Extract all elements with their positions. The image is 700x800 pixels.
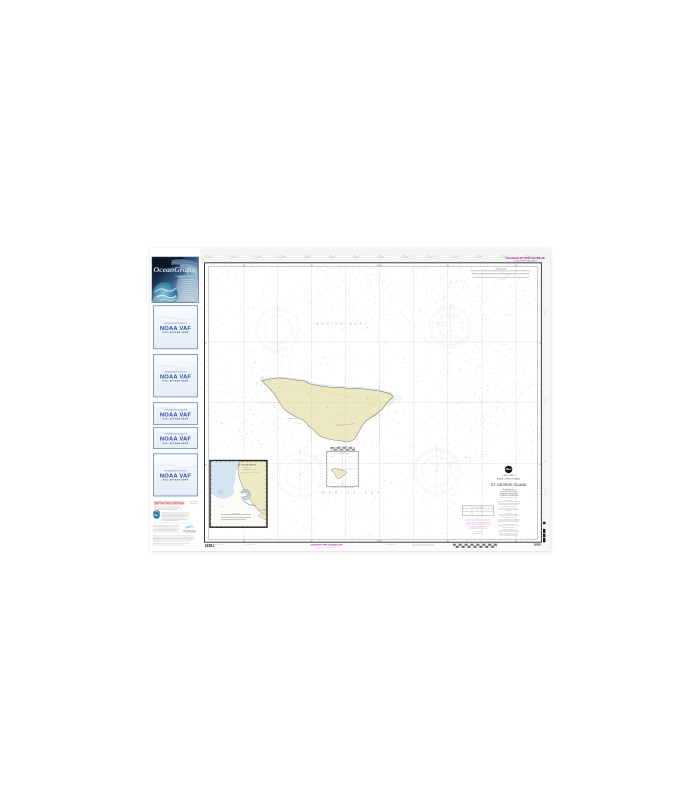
svg-text:48: 48 <box>342 281 344 283</box>
svg-text:4.1: 4.1 <box>326 407 328 409</box>
svg-text:27: 27 <box>361 486 363 488</box>
svg-text:44: 44 <box>425 269 427 271</box>
svg-text:17: 17 <box>272 488 274 490</box>
svg-text:44: 44 <box>413 446 415 448</box>
svg-text:44: 44 <box>351 514 353 516</box>
svg-text:38: 38 <box>478 302 480 304</box>
svg-text:7: 7 <box>451 529 452 531</box>
svg-text:NOAA VAF: NOAA VAF <box>160 412 191 418</box>
svg-text:61: 61 <box>431 355 433 357</box>
svg-text:9: 9 <box>299 532 300 534</box>
svg-text:56°35'N 169°40'W: 56°35'N 169°40'W <box>246 544 256 546</box>
svg-text:16381: 16381 <box>205 543 215 549</box>
svg-text:WILL APPEAR HERE: WILL APPEAR HERE <box>163 479 189 482</box>
svg-text:31: 31 <box>450 283 452 285</box>
svg-text:9990-X: 9990-X <box>465 510 469 512</box>
svg-text:56: 56 <box>278 293 280 295</box>
svg-text:17: 17 <box>338 286 340 288</box>
svg-text:56: 56 <box>271 478 273 480</box>
svg-text:23: 23 <box>424 423 426 425</box>
svg-text:2.2: 2.2 <box>340 414 342 416</box>
svg-text:9990-Y: 9990-Y <box>475 510 479 512</box>
svg-text:16381: 16381 <box>533 543 541 547</box>
svg-text:48: 48 <box>522 394 524 396</box>
svg-text:2.1: 2.1 <box>278 387 280 389</box>
svg-text:44: 44 <box>319 295 321 297</box>
svg-text:61: 61 <box>431 498 433 500</box>
svg-text:61: 61 <box>253 414 255 416</box>
svg-text:NOAA VAF: NOAA VAF <box>160 437 191 443</box>
svg-text:17: 17 <box>511 308 513 310</box>
svg-text:12: 12 <box>394 453 396 455</box>
svg-text:BERING SEA: BERING SEA <box>323 491 384 495</box>
svg-text:38: 38 <box>327 364 329 366</box>
svg-text:56: 56 <box>418 309 420 311</box>
svg-text:48: 48 <box>457 531 459 533</box>
svg-text:38: 38 <box>253 448 255 450</box>
svg-text:12: 12 <box>347 379 349 381</box>
svg-text:56: 56 <box>404 315 406 317</box>
svg-text:61: 61 <box>324 357 326 359</box>
svg-text:48: 48 <box>313 519 315 521</box>
svg-text:1.4: 1.4 <box>372 404 374 406</box>
svg-text:61: 61 <box>368 526 370 528</box>
svg-text:17: 17 <box>418 527 420 529</box>
svg-text:23: 23 <box>251 425 253 427</box>
svg-text:44: 44 <box>369 286 371 288</box>
svg-text:27: 27 <box>488 445 490 447</box>
svg-text:56: 56 <box>371 447 373 449</box>
svg-text:38: 38 <box>276 336 278 338</box>
svg-text:OCEANGRAFIX® PRINT-ON-DEMAND: OCEANGRAFIX® PRINT-ON-DEMAND <box>506 257 546 260</box>
svg-text:61: 61 <box>437 426 439 428</box>
svg-text:23: 23 <box>280 510 282 512</box>
svg-text:ST. GEORGE HARBOR: ST. GEORGE HARBOR <box>238 463 257 466</box>
svg-text:38: 38 <box>378 419 380 421</box>
svg-text:Charting your course: Charting your course <box>175 275 193 278</box>
svg-text:61: 61 <box>305 447 307 449</box>
svg-text:9: 9 <box>417 382 418 384</box>
svg-text:12: 12 <box>252 308 254 310</box>
svg-text:17: 17 <box>509 287 511 289</box>
svg-text:1.9: 1.9 <box>318 427 320 429</box>
svg-text:NOAA VAF: NOAA VAF <box>160 474 191 480</box>
svg-text:44: 44 <box>509 286 511 288</box>
svg-text:NOAA VAF: NOAA VAF <box>160 374 191 380</box>
svg-text:9990-Z: 9990-Z <box>486 510 490 512</box>
svg-text:23: 23 <box>395 437 397 439</box>
svg-text:2.6: 2.6 <box>366 399 368 401</box>
svg-text:7: 7 <box>465 424 466 426</box>
svg-text:WILL APPEAR HERE: WILL APPEAR HERE <box>163 331 189 334</box>
svg-text:44: 44 <box>241 307 243 309</box>
svg-text:27: 27 <box>468 297 470 299</box>
svg-text:56: 56 <box>315 456 317 458</box>
svg-text:170°30': 170°30' <box>376 541 383 543</box>
svg-text:17: 17 <box>223 443 225 445</box>
svg-text:9: 9 <box>263 295 264 297</box>
svg-text:1.8: 1.8 <box>346 397 348 399</box>
svg-text:61: 61 <box>327 277 329 279</box>
svg-text:27: 27 <box>462 409 464 411</box>
svg-text:38: 38 <box>431 509 433 511</box>
svg-text:12: 12 <box>360 284 362 286</box>
svg-text:38: 38 <box>510 349 512 351</box>
svg-text:12: 12 <box>480 388 482 390</box>
svg-text:61: 61 <box>261 444 263 446</box>
svg-text:OceanGrafix: OceanGrafix <box>153 265 195 274</box>
svg-text:61: 61 <box>221 391 223 393</box>
svg-text:44: 44 <box>217 280 219 282</box>
svg-text:48: 48 <box>273 424 275 426</box>
svg-text:31: 31 <box>495 408 497 410</box>
svg-text:56: 56 <box>447 372 449 374</box>
svg-text:27: 27 <box>321 460 323 462</box>
svg-text:3.4: 3.4 <box>308 393 310 395</box>
svg-text:Zapadni Bay: Zapadni Bay <box>287 418 297 420</box>
svg-text:170°30': 170°30' <box>376 265 383 267</box>
svg-text:31: 31 <box>471 436 473 438</box>
svg-text:BERING SEA: BERING SEA <box>317 322 365 326</box>
svg-text:23: 23 <box>255 439 257 441</box>
svg-text:7: 7 <box>412 280 413 282</box>
svg-text:23: 23 <box>327 498 329 500</box>
svg-text:38: 38 <box>305 528 307 530</box>
svg-text:7: 7 <box>373 450 374 452</box>
svg-text:56: 56 <box>495 283 497 285</box>
svg-text:12: 12 <box>312 533 314 535</box>
svg-text:1630: 1630 <box>220 506 223 508</box>
svg-text:23: 23 <box>465 403 467 405</box>
svg-text:17: 17 <box>418 310 420 312</box>
svg-text:ST. GEORGE ISLAND: ST. GEORGE ISLAND <box>491 483 527 487</box>
svg-text:44: 44 <box>346 534 348 536</box>
svg-text:61: 61 <box>249 269 251 271</box>
svg-text:27: 27 <box>360 271 362 273</box>
svg-text:27: 27 <box>407 494 409 496</box>
svg-text:WILL APPEAR HERE: WILL APPEAR HERE <box>163 379 189 382</box>
svg-text:WILL APPEAR HERE: WILL APPEAR HERE <box>163 417 189 420</box>
svg-text:48: 48 <box>243 410 245 412</box>
svg-text:NOAA VAF: NOAA VAF <box>160 326 191 332</box>
svg-text:WILL APPEAR HERE: WILL APPEAR HERE <box>163 442 189 445</box>
svg-text:44: 44 <box>262 292 264 294</box>
svg-text:61: 61 <box>483 415 485 417</box>
svg-text:44: 44 <box>302 473 304 475</box>
